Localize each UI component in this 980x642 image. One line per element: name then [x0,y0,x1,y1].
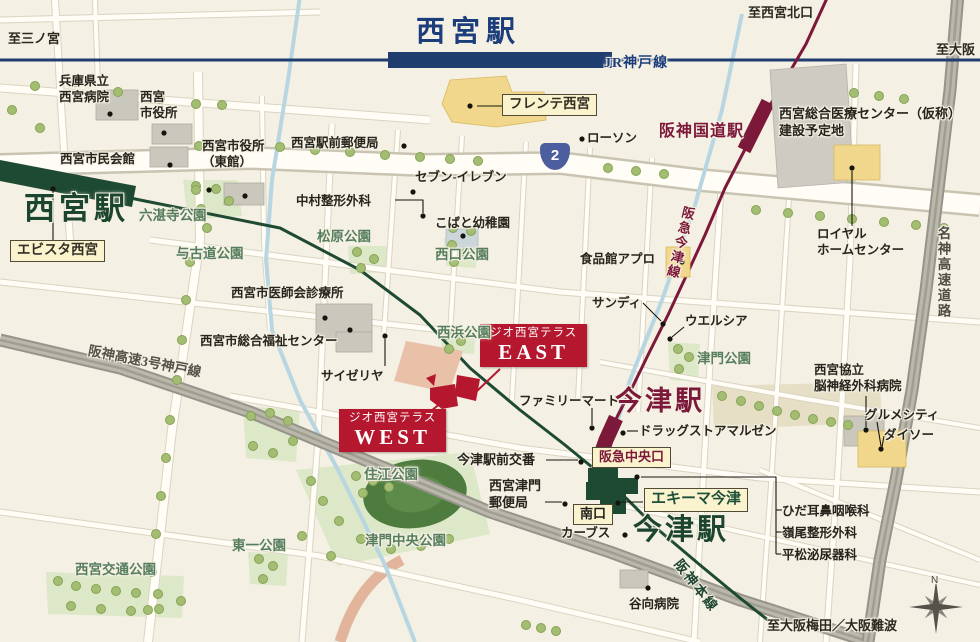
poi-welcia: ウエルシア [685,313,748,329]
poi-medical-center-site: 西宮総合医療センター（仮称） 建設予定地 [779,106,961,140]
to-nishinomiya-kitaguchi-label: 至西宮北口 [748,5,813,22]
jr-kobe-line-label: JR神戸線 [604,55,668,73]
compass-north-label: N [931,574,938,587]
station-hankyu-kokudo: 阪神国道駅 [659,122,744,143]
park-nishihama: 西浜公園 [437,324,491,342]
meishin-expressway-label: 名神高速道路 [934,226,952,319]
poi-drug-maruzen: ドラッグストアマルゼン [639,423,777,439]
poi-fukushi-center: 西宮市総合福祉センター [200,333,338,349]
area-map: 西宮駅 西宮駅 阪神国道駅 今津駅 今津駅 JR神戸線 阪急今津線 阪神本線 阪… [0,0,980,642]
poi-tanimukai-hospital: 谷向病院 [629,596,679,612]
poi-hiramatsu-urology: 平松泌尿器科 [782,547,857,563]
property-brand-west: ジオ西宮テラス [349,412,436,426]
poi-family-mart: ファミリーマート [519,393,619,409]
to-osaka-label: 至大阪 [936,42,975,59]
south-exit-label: 南口 [573,504,613,525]
poi-gourmet-city: グルメシティ [865,407,939,423]
poi-ishikai-clinic: 西宮市医師会診療所 [231,285,344,301]
park-kotsu: 西宮交通公園 [75,561,156,579]
poi-royal-home-center: ロイヤル ホームセンター [817,226,904,259]
ekima-imazu-label: エキーマ今津 [644,488,748,512]
station-jr-nishinomiya: 西宮駅 [416,14,521,52]
poi-civic-hall: 西宮市民会館 [60,151,135,167]
park-tsuto: 津門公園 [697,350,751,368]
property-east-box: ジオ西宮テラス EAST [480,324,587,367]
park-rokutanji: 六湛寺公園 [139,207,207,225]
poi-curves: カーブス [561,525,610,541]
property-brand-east: ジオ西宮テラス [490,327,577,341]
park-nishiguchi: 西口公園 [435,246,489,264]
to-sannomiya-label: 至三ノ宮 [8,31,60,48]
poi-kyoritsu-hospital: 西宮協立 脳神経外科病院 [814,362,902,395]
poi-sandy: サンディ [592,295,641,311]
station-hanshin-nishinomiya: 西宮駅 [24,189,129,229]
poi-ekimae-post-office: 西宮駅前郵便局 [291,135,379,151]
property-west-name: WEST [349,426,436,448]
poi-imazu-koban: 今津駅前交番 [457,452,535,469]
park-sumie: 住江公園 [364,466,418,484]
park-yokodo: 与古道公園 [176,245,244,263]
to-osaka-umeda-namba-label: 至大阪梅田／大阪難波 [767,618,897,635]
poi-kobato-kindergarten: こばと幼稚園 [435,215,510,231]
poi-lawson: ローソン [587,130,637,146]
poi-city-hall: 西宮 市役所 [140,89,178,122]
park-matsubara: 松原公園 [317,228,371,246]
ebista-nishinomiya-label: エビスタ西宮 [10,240,105,262]
park-tsuto-chuo: 津門中央公園 [365,532,446,550]
property-east-name: EAST [490,341,577,363]
poi-nakamura-seikei: 中村整形外科 [296,193,371,209]
poi-saizeriya: サイゼリヤ [321,368,384,384]
station-hanshin-imazu: 今津駅 [633,512,729,550]
poi-tsuto-post-office: 西宮津門 郵便局 [489,478,541,512]
property-west-box: ジオ西宮テラス WEST [339,409,446,452]
poi-city-hall-east: 西宮市役所 （東館） [202,138,265,171]
poi-apro: 食品館アプロ [580,251,655,267]
park-higashiichi: 東一公園 [232,537,286,555]
poi-hyogo-hospital: 兵庫県立 西宮病院 [59,73,109,106]
frente-nishinomiya-label: フレンテ西宮 [502,94,597,116]
poi-hida-ent: ひだ耳鼻咽喉科 [782,503,870,519]
poi-daiso: ダイソー [884,427,934,443]
station-hankyu-imazu: 今津駅 [615,384,705,419]
hankyu-central-exit-label: 阪急中央口 [592,447,671,468]
poi-seven-eleven: セブン-イレブン [415,169,507,185]
poi-mineo-seikei: 嶺尾整形外科 [782,525,857,541]
